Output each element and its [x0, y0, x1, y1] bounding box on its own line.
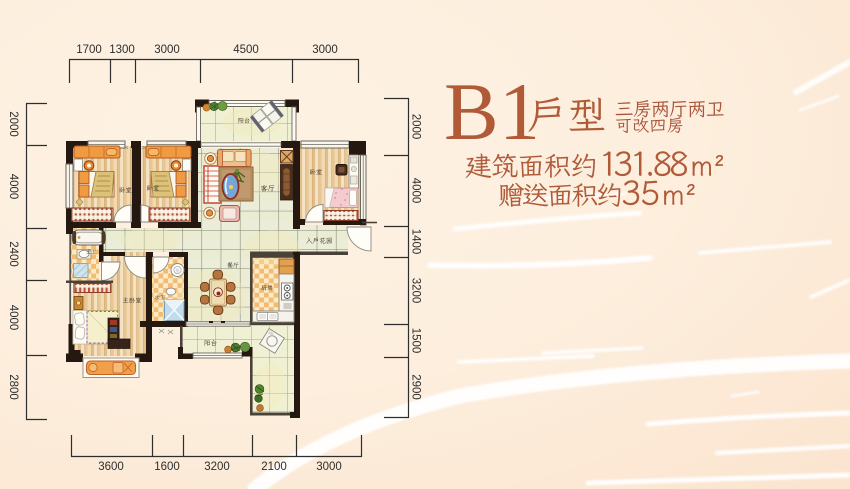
svg-text:B1: B1: [444, 66, 540, 157]
svg-text:2900: 2900: [410, 374, 422, 400]
svg-text:2000: 2000: [410, 114, 422, 140]
svg-text:3000: 3000: [316, 461, 342, 473]
svg-text:2400: 2400: [7, 241, 19, 267]
svg-text:1700: 1700: [76, 44, 102, 56]
svg-text:3000: 3000: [312, 44, 338, 56]
svg-text:4500: 4500: [233, 44, 259, 56]
svg-text:2000: 2000: [7, 111, 19, 137]
svg-text:3200: 3200: [410, 278, 422, 304]
svg-text:1500: 1500: [410, 328, 422, 354]
svg-text:3200: 3200: [204, 461, 230, 473]
svg-text:4000: 4000: [7, 305, 19, 331]
svg-text:4000: 4000: [410, 178, 422, 204]
svg-text:3600: 3600: [98, 461, 124, 473]
svg-text:4000: 4000: [7, 174, 19, 200]
svg-text:1300: 1300: [109, 44, 135, 56]
svg-text:1600: 1600: [154, 461, 180, 473]
svg-text:2800: 2800: [7, 374, 19, 400]
svg-text:2100: 2100: [261, 461, 287, 473]
svg-text:3000: 3000: [154, 44, 180, 56]
svg-text:1400: 1400: [410, 229, 422, 255]
